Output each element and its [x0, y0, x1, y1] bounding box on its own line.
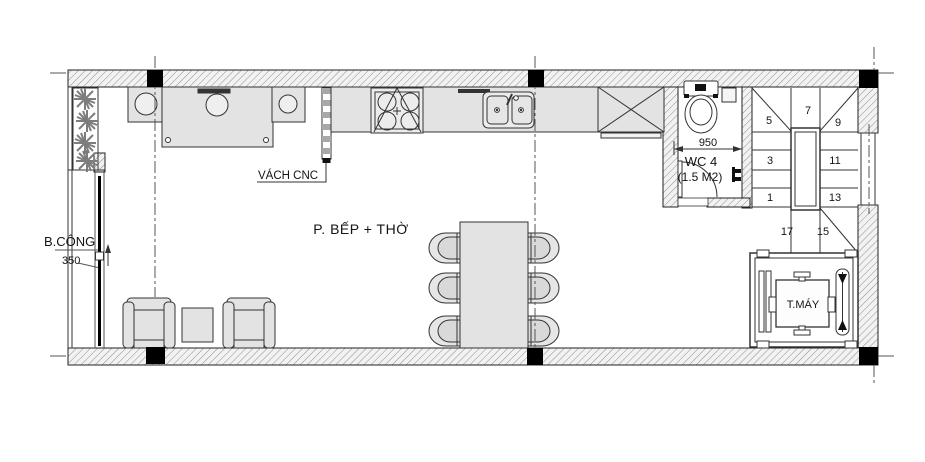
dining-chairs-right: [528, 233, 559, 346]
armchair: [123, 298, 175, 348]
stove-icon: [371, 88, 423, 133]
column: [859, 347, 878, 365]
partition-label: VÁCH CNC: [258, 169, 318, 182]
fridge-box: [598, 87, 664, 138]
stair-step-label: 13: [829, 192, 841, 204]
column: [528, 70, 544, 87]
window-right: [858, 133, 878, 205]
wc-shelf-box: [722, 88, 736, 102]
balcony: [55, 87, 105, 348]
balcony-dim: 350: [62, 255, 80, 267]
floor-plan: P. BẾP + THỜ B.CÔNG 350 VÁCH CNC WC 4 (1…: [0, 0, 925, 462]
room-label: P. BẾP + THỜ: [313, 221, 408, 237]
balcony-rail: [68, 87, 72, 348]
coffee-table: [182, 308, 213, 342]
stair-step-label: 7: [805, 105, 811, 117]
altar-cabinet: [128, 87, 305, 147]
plant-icon: [74, 88, 96, 110]
plant-icon: [76, 110, 98, 132]
balcony-pier: [94, 153, 105, 172]
wall-kitchen-wc: [663, 87, 678, 207]
stair-step-label: 17: [781, 226, 793, 238]
top-wall: [68, 70, 878, 87]
wc-area: (1.5 M2): [678, 170, 723, 184]
stair-step-label: 1: [767, 192, 773, 204]
right-wall-upper: [858, 87, 878, 133]
elevator-door-rail: [759, 271, 764, 332]
dining-chair: [429, 273, 460, 303]
dining-chair: [528, 233, 559, 263]
wc-name: WC 4: [685, 154, 718, 169]
bottom-wall: [68, 348, 878, 365]
stair-step-label: 5: [766, 115, 772, 127]
right-wall-lower: [858, 205, 878, 348]
wc-fixture: [732, 167, 741, 182]
sliding-door: [96, 176, 112, 346]
balcony-label: B.CÔNG: [44, 234, 95, 249]
elevator-label: T.MÁY: [787, 298, 820, 311]
dining-chair: [528, 316, 559, 346]
column: [146, 347, 165, 364]
stair-step-label: 11: [829, 155, 840, 167]
stair-step-label: 15: [817, 226, 829, 238]
plant-icon: [74, 132, 96, 154]
dining-chair: [429, 233, 460, 263]
wc-dim-950: 950: [699, 137, 717, 149]
dining-chair: [528, 273, 559, 303]
sink-icon: [483, 92, 534, 128]
dining-table: [460, 222, 528, 348]
wall-wc-bottom: [707, 198, 750, 207]
stair-step-label: 3: [767, 155, 773, 167]
floor-plan-drawing: P. BẾP + THỜ B.CÔNG 350 VÁCH CNC WC 4 (1…: [0, 0, 925, 462]
armchair: [223, 298, 275, 348]
stair-step-label: 9: [835, 117, 841, 129]
toilet-icon: [684, 81, 718, 133]
column: [859, 70, 878, 88]
plant-icon: [76, 150, 98, 172]
elevator-counterweight: [836, 269, 849, 335]
dining-chairs-left: [429, 233, 460, 346]
dining-chair: [429, 316, 460, 346]
wall-wc-stair: [742, 87, 752, 208]
column: [147, 70, 163, 87]
column: [527, 348, 543, 365]
